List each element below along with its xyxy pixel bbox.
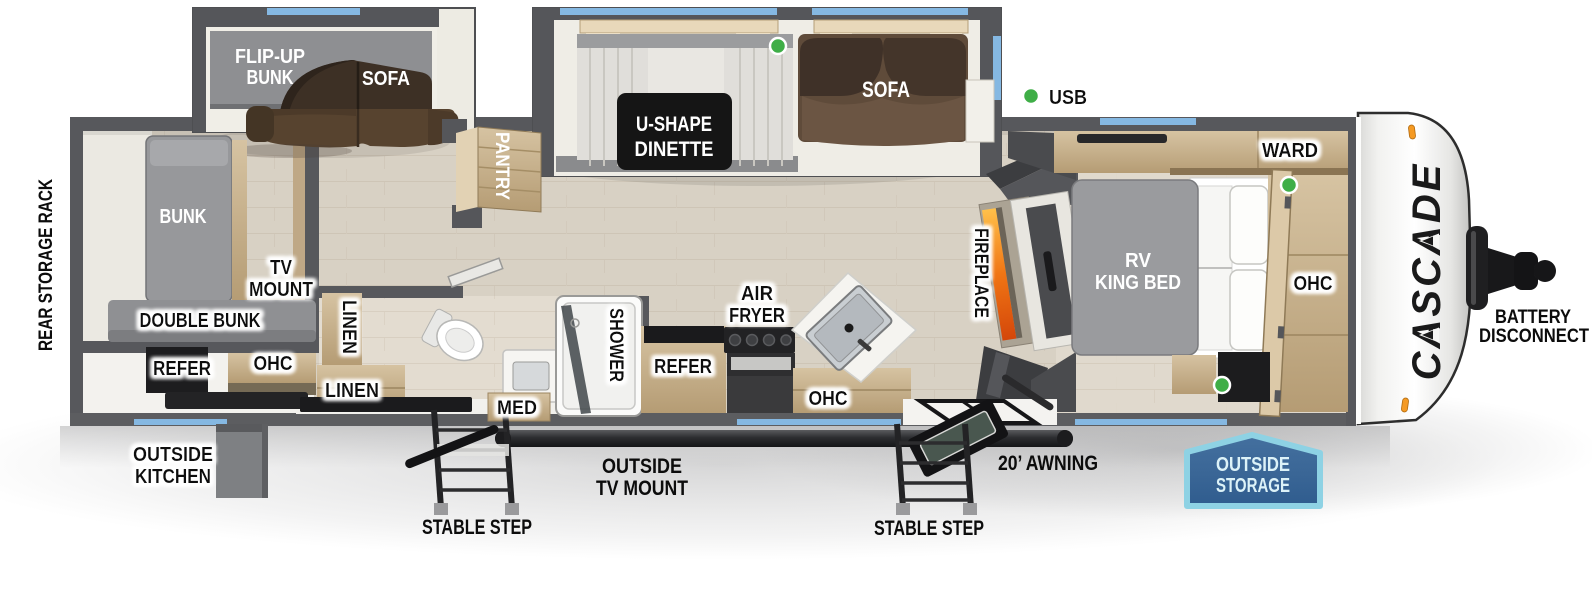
svg-text:DINETTE: DINETTE [635, 138, 714, 161]
svg-text:MOUNT: MOUNT [249, 279, 313, 301]
svg-text:FLIP-UP: FLIP-UP [235, 46, 305, 68]
svg-text:AIR: AIR [741, 283, 774, 305]
svg-text:KING BED: KING BED [1095, 272, 1181, 294]
svg-text:MED: MED [497, 398, 537, 419]
svg-text:USB: USB [1049, 87, 1087, 109]
svg-text:STABLE STEP: STABLE STEP [874, 517, 984, 540]
svg-text:U-SHAPE: U-SHAPE [636, 113, 712, 136]
svg-text:DOUBLE BUNK: DOUBLE BUNK [140, 310, 261, 332]
svg-text:OUTSIDE: OUTSIDE [133, 444, 213, 466]
svg-text:TV MOUNT: TV MOUNT [596, 477, 688, 500]
svg-text:STORAGE: STORAGE [1216, 475, 1290, 497]
svg-text:LINEN: LINEN [338, 300, 359, 354]
svg-text:SHOWER: SHOWER [605, 308, 626, 382]
svg-text:OHC: OHC [809, 388, 848, 410]
svg-text:LINEN: LINEN [325, 380, 379, 402]
svg-text:RV: RV [1125, 250, 1152, 272]
svg-text:SOFA: SOFA [862, 77, 910, 102]
svg-text:DISCONNECT: DISCONNECT [1479, 326, 1589, 347]
svg-text:FIREPLACE: FIREPLACE [970, 228, 991, 318]
svg-text:OUTSIDE: OUTSIDE [602, 455, 682, 478]
svg-text:STABLE STEP: STABLE STEP [422, 516, 532, 539]
svg-text:REAR STORAGE RACK: REAR STORAGE RACK [36, 179, 57, 351]
svg-text:KITCHEN: KITCHEN [135, 466, 211, 488]
svg-text:REFER: REFER [654, 356, 712, 378]
svg-text:PANTRY: PANTRY [491, 132, 512, 200]
svg-text:OHC: OHC [254, 353, 293, 375]
svg-text:BUNK: BUNK [247, 67, 294, 89]
svg-text:OUTSIDE: OUTSIDE [1216, 454, 1290, 476]
svg-text:TV: TV [270, 257, 293, 279]
svg-text:OHC: OHC [1294, 273, 1333, 295]
svg-text:SOFA: SOFA [362, 68, 410, 90]
svg-text:20’ AWNING: 20’ AWNING [998, 452, 1098, 475]
svg-text:BUNK: BUNK [160, 206, 207, 228]
svg-text:BATTERY: BATTERY [1495, 307, 1571, 328]
svg-text:FRYER: FRYER [729, 305, 785, 327]
svg-text:CASCADE: CASCADE [1405, 162, 1449, 381]
svg-text:REFER: REFER [153, 358, 211, 380]
svg-text:WARD: WARD [1262, 140, 1318, 162]
